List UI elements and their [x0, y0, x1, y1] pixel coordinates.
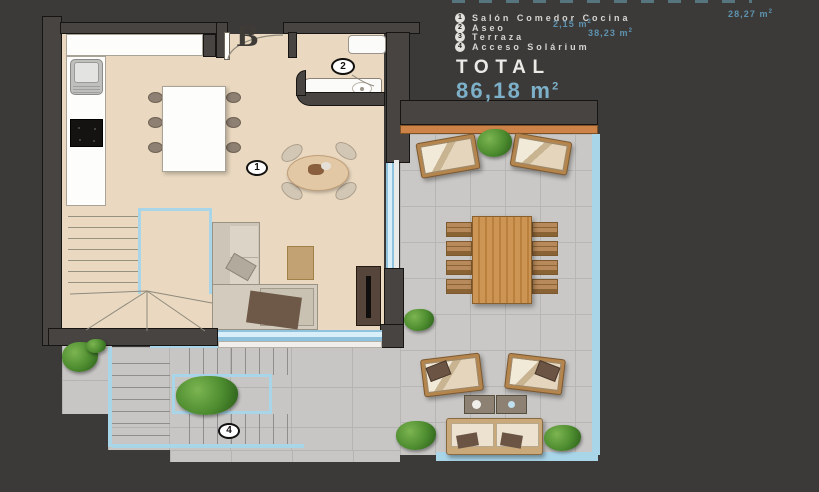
marker-aseo-number: 2 [340, 62, 346, 72]
dining-chair [148, 117, 163, 128]
marker-aseo: 2 [331, 58, 355, 75]
marker-salon-number: 1 [254, 163, 260, 173]
terrace-armchair [504, 353, 566, 396]
ottoman [287, 246, 314, 280]
round-table-plate [321, 162, 331, 170]
kitchen-counter-top [66, 34, 203, 56]
window-outer-sill [394, 160, 399, 268]
area-number: 28,27 [728, 9, 756, 19]
tv-screen [366, 276, 371, 318]
wall-left [42, 16, 62, 346]
entry-door-leaf [224, 32, 230, 60]
exterior-stairs-top-run [176, 347, 300, 375]
terrace-dining-chair [446, 222, 472, 237]
interior-stairs [68, 206, 138, 292]
area-unit: m2 [760, 9, 774, 19]
kitchen-sink-basin [74, 62, 99, 83]
terrace-dining-chair [446, 260, 472, 275]
exterior-stairs-left-run [112, 352, 170, 444]
terrace-glass-balustrade-right [592, 134, 600, 455]
area-legend: 1Salón Comedor Cocina 28,27 m2 2Aseo 2,1… [455, 6, 819, 58]
door-sill [218, 341, 382, 348]
aseo-basin-drain [360, 87, 364, 91]
terrace-sofa [446, 418, 543, 455]
wall-stub-door-right [380, 324, 404, 348]
terrace-dining-chair [446, 279, 472, 294]
glass-window-right [386, 163, 394, 268]
floorplan-page: { "legend": { "items": [ {"num":"1","lab… [0, 0, 819, 492]
stairs-landing-railing [138, 208, 212, 294]
legend-area-value: 28,27 m2 [728, 9, 773, 19]
dining-chair [226, 117, 241, 128]
aseo-toilet [348, 35, 386, 54]
terrace-dining-chair [532, 279, 558, 294]
terrace-dining-table [472, 216, 532, 304]
floor-plan: B 1 2 4 1Salón Comedor Cocina 28,27 m2 2… [0, 0, 819, 492]
wall-right-upper [386, 32, 410, 163]
terrace-dining-chair [532, 222, 558, 237]
counter-end-wall [203, 34, 216, 57]
exterior-floor-strip [170, 450, 400, 462]
marker-salon: 1 [246, 160, 268, 176]
cropped-text-remnant [452, 0, 752, 3]
glass-sliding-door [218, 330, 382, 341]
stairs-glass-rail-left [108, 347, 112, 447]
legend-bullet-4: 4 [455, 42, 465, 52]
kitchen-drainboard [73, 86, 100, 94]
stairs-glass-rail-bottom [112, 444, 304, 448]
kitchen-cooktop [70, 119, 103, 147]
marker-solarium-number: 4 [226, 426, 232, 436]
coffee-table-tray [472, 400, 481, 409]
total-label: TOTAL [456, 57, 551, 79]
legend-item-solarium: 4Acceso Solárium [455, 38, 819, 49]
area-number: 38,23 [588, 28, 616, 38]
armchair-cushion [514, 137, 568, 171]
total-unit: m2 [530, 78, 560, 103]
legend-area-value: 38,23 m2 [588, 28, 633, 38]
terrace-armchair [420, 352, 484, 397]
wall-top-left [60, 22, 218, 34]
legend-label: Acceso Solárium [472, 42, 590, 52]
dining-chair [148, 92, 163, 103]
unit-letter-label: B [236, 24, 259, 51]
area-unit: m2 [620, 28, 634, 38]
terrace-dining-chair [446, 241, 472, 256]
coffee-table-cup [508, 401, 515, 408]
door-jamb-right [288, 32, 297, 58]
dining-chair [226, 92, 241, 103]
dining-chair [148, 142, 163, 153]
total-value: 86,18 m2 [456, 78, 560, 104]
dining-table [162, 86, 226, 172]
total-number: 86,18 [456, 78, 522, 103]
aseo-bottom-wall [296, 92, 385, 106]
marker-solarium: 4 [218, 423, 240, 439]
armchair-cushion [420, 138, 476, 175]
terrace-dining-chair [532, 260, 558, 275]
aseo-curved-wall [296, 70, 306, 96]
terrace-dining-chair [532, 241, 558, 256]
dining-chair [226, 142, 241, 153]
